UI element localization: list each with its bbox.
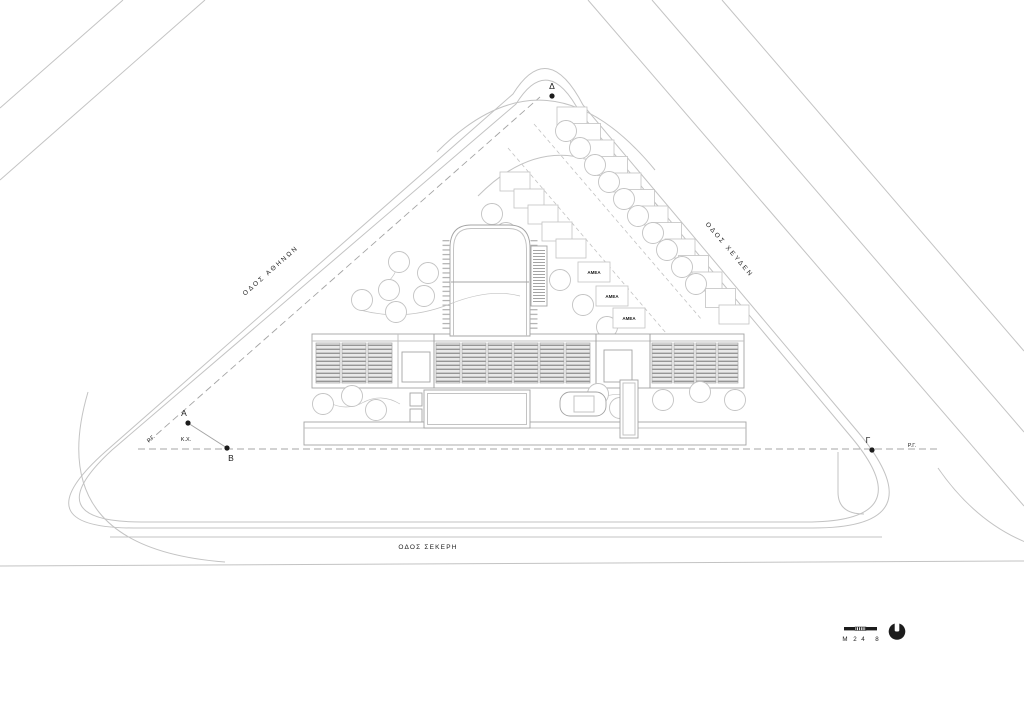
point-beta-dot <box>224 445 229 450</box>
louver-panels <box>316 343 738 383</box>
point-delta-dot <box>549 93 554 98</box>
stair-block <box>410 409 422 422</box>
entrance-canopy <box>424 390 530 428</box>
scale-tick-label: 4 <box>861 636 865 643</box>
tree-symbol <box>690 382 711 403</box>
tree-symbol <box>725 390 746 411</box>
scale-unit-label: Μ <box>842 636 847 643</box>
tree-symbol <box>657 240 678 261</box>
tree-symbol <box>366 400 387 421</box>
point-delta-label: Δ <box>549 81 555 91</box>
tree-symbol <box>672 257 693 278</box>
tree-symbol <box>379 280 400 301</box>
point-gamma-label: Γ <box>866 435 871 445</box>
public-space-label-kx: Κ.Χ. <box>181 437 192 443</box>
point-alpha-label: Α <box>181 408 187 418</box>
roof-opening <box>604 350 632 382</box>
scale-tick-label: 8 <box>875 636 879 643</box>
tree-symbol <box>686 274 707 295</box>
street-label-sekeri: ΟΔΟΣ ΣΕΚΕΡΗ <box>398 544 457 551</box>
tree-symbol <box>643 223 664 244</box>
parking-stall <box>556 239 586 258</box>
parking-stall <box>528 205 558 224</box>
tree-symbol <box>628 206 649 227</box>
tree-symbol <box>614 189 635 210</box>
parking-stall <box>719 305 749 324</box>
tree-symbol <box>599 172 620 193</box>
stair-block <box>410 393 422 406</box>
point-alpha-dot <box>185 420 190 425</box>
tree-symbol <box>418 263 439 284</box>
amea-stall-label: ΑΜΕΑ <box>622 316 636 321</box>
site-plan-page: ΑΜΕΑ ΑΜΕΑ ΑΜΕΑ <box>0 0 1024 724</box>
street-label-athinon: ΟΔΟΣ ΑΘΗΝΩΝ <box>242 244 301 297</box>
tree-symbol <box>389 252 410 273</box>
tree-symbol <box>482 204 503 225</box>
alignment-label-rg-right: Ρ.Γ. <box>908 443 917 449</box>
tower <box>443 225 548 336</box>
amea-stall-label: ΑΜΕΑ <box>587 270 601 275</box>
point-gamma-dot <box>869 447 874 452</box>
north-indicator-icon <box>889 622 906 640</box>
tree-symbol <box>573 295 594 316</box>
tree-symbol <box>313 394 334 415</box>
scale-tick-label: 2 <box>853 636 857 643</box>
tree-symbol <box>386 302 407 323</box>
tower-stair-hatch <box>533 248 545 304</box>
parking-stall <box>500 172 530 191</box>
tree-symbol <box>585 155 606 176</box>
tree-symbol <box>550 270 571 291</box>
tree-symbol <box>414 286 435 307</box>
amea-stall-label: ΑΜΕΑ <box>605 294 619 299</box>
scale-bar: Μ 2 4 8 <box>842 627 879 643</box>
alignment-label-rg-left: Ρ.Γ. <box>146 434 157 444</box>
tree-symbol <box>556 121 577 142</box>
tree-symbol <box>653 390 674 411</box>
tree-symbol <box>342 386 363 407</box>
site-plan-drawing: ΑΜΕΑ ΑΜΕΑ ΑΜΕΑ <box>0 0 1024 724</box>
tree-symbol <box>570 138 591 159</box>
tree-symbol <box>352 290 373 311</box>
parking-stall <box>542 222 572 241</box>
point-beta-label: Β <box>228 453 234 463</box>
roof-opening <box>402 352 430 382</box>
